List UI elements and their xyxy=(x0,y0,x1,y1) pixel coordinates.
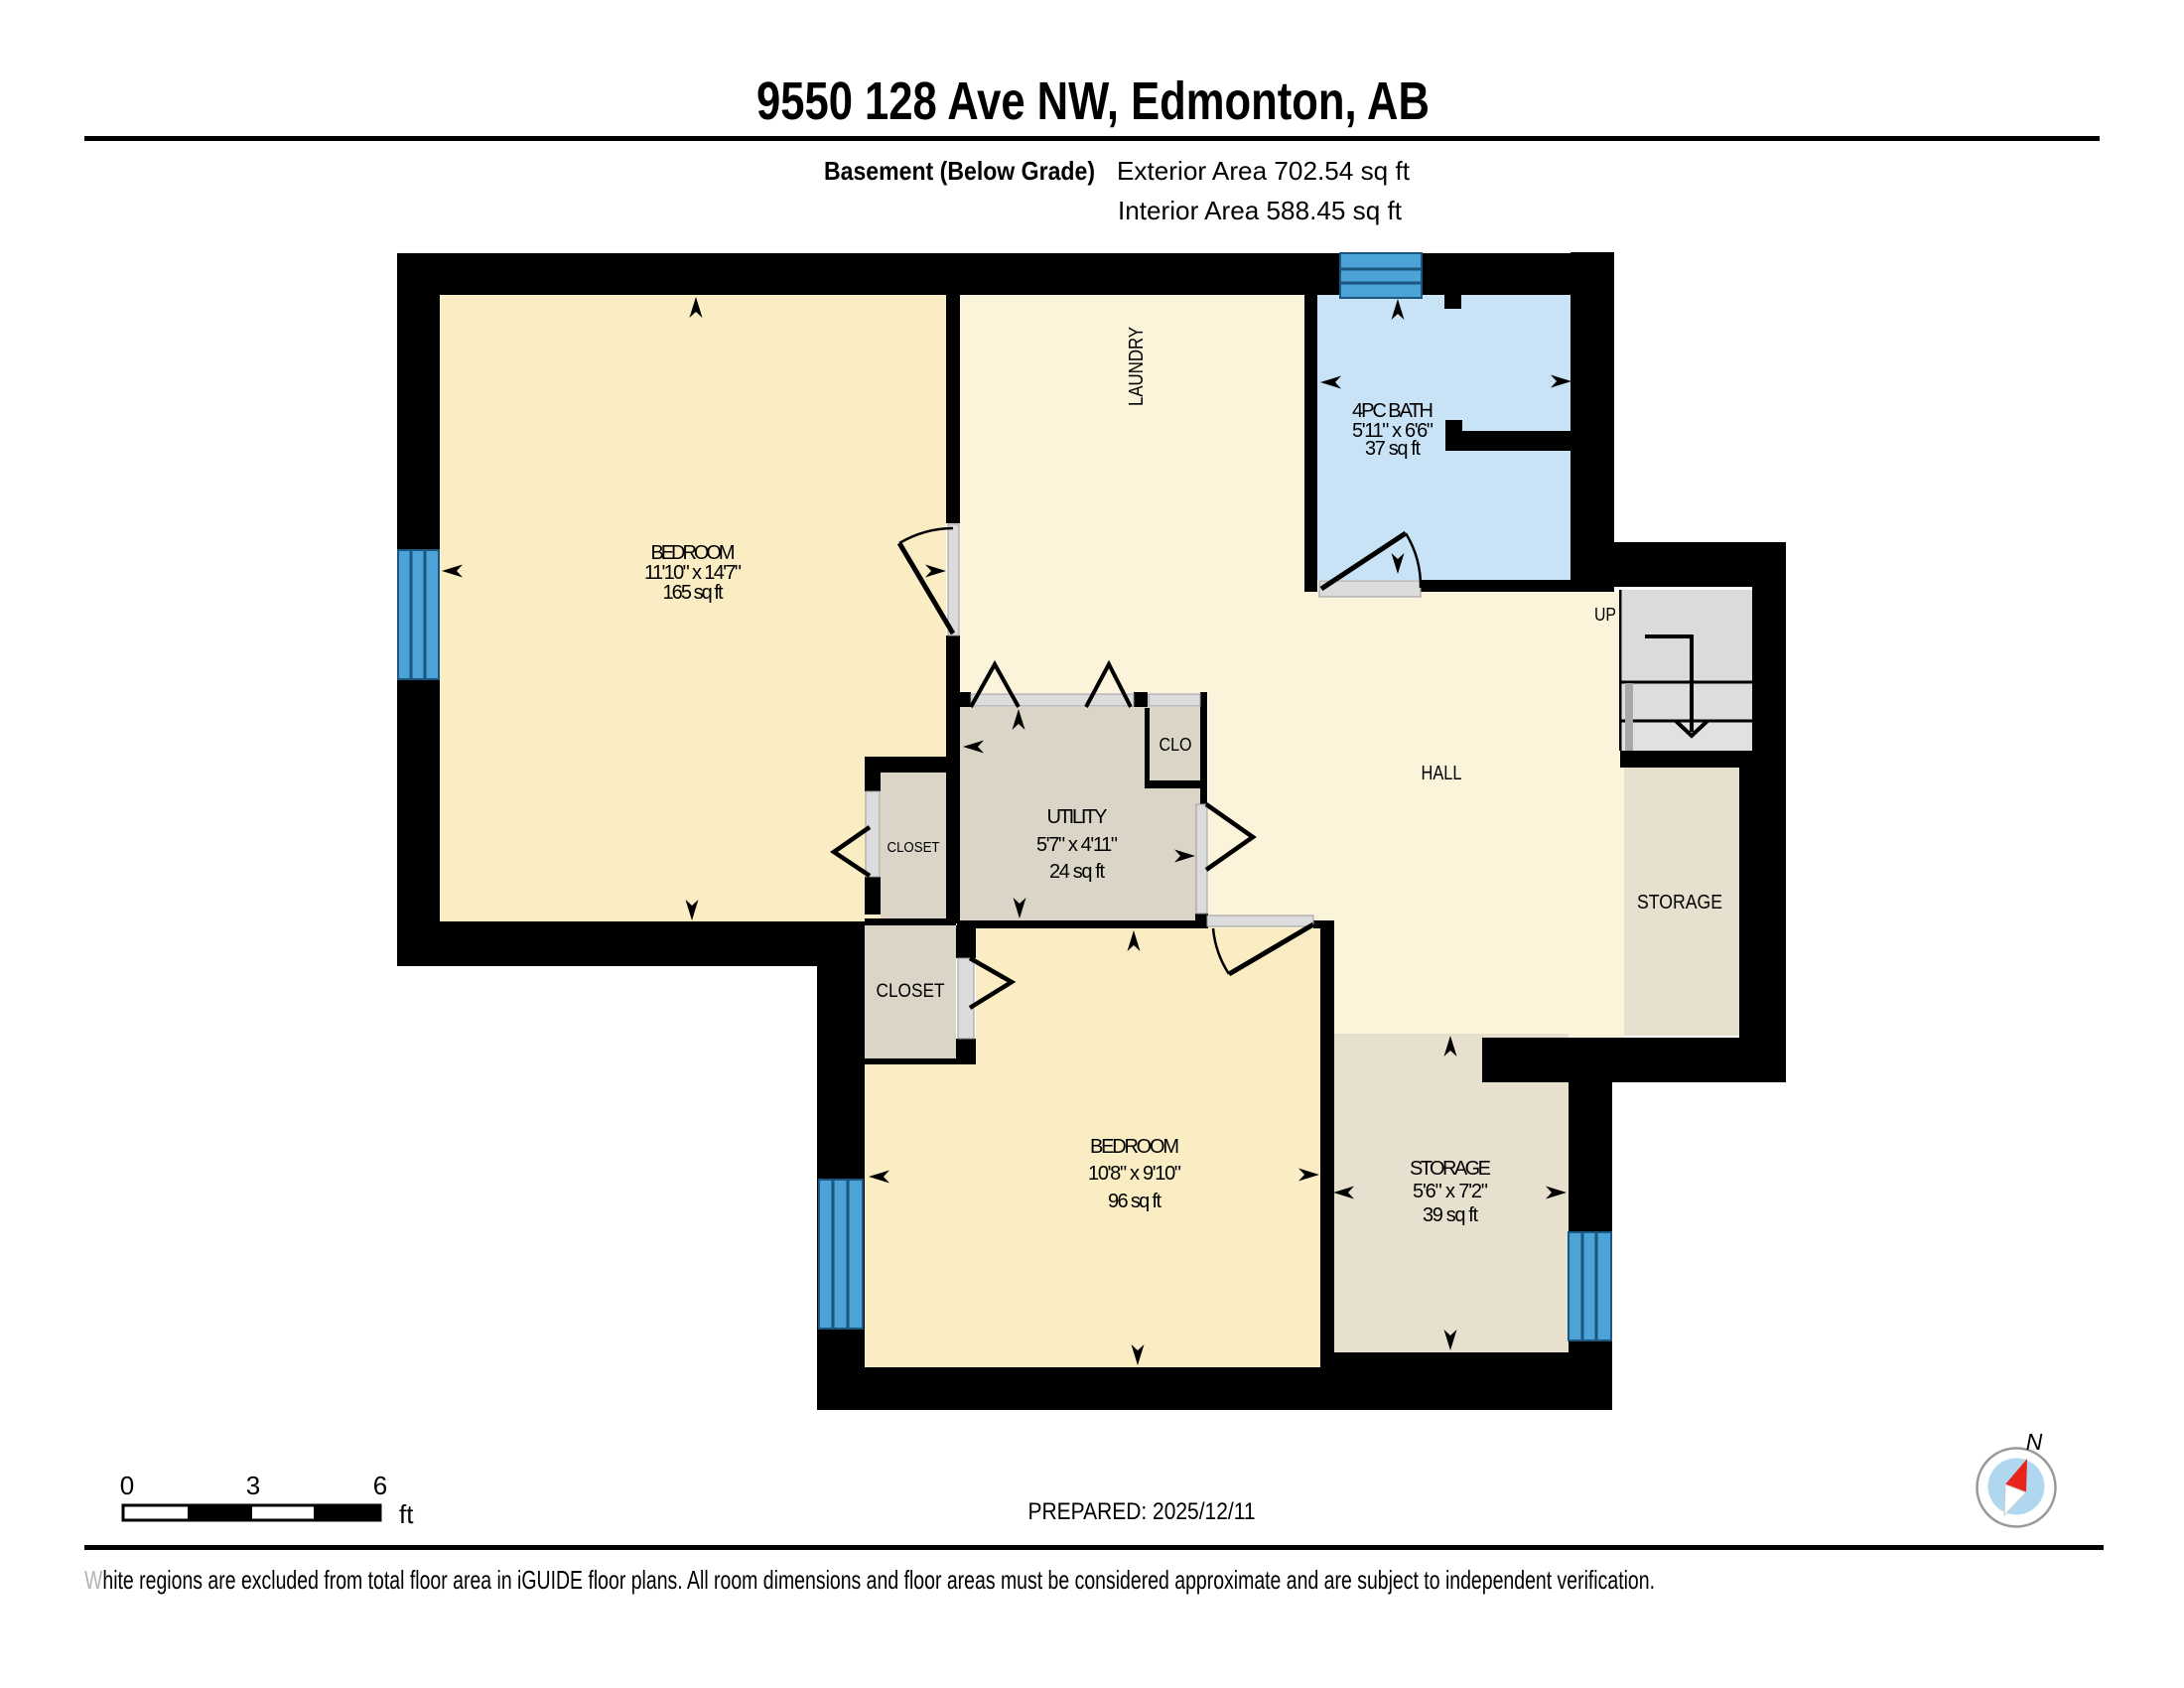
svg-text:165 sq ft: 165 sq ft xyxy=(663,582,724,604)
svg-text:9550 128 Ave NW, Edmonton, AB: 9550 128 Ave NW, Edmonton, AB xyxy=(756,71,1430,131)
svg-text:3: 3 xyxy=(246,1471,260,1500)
svg-text:ft: ft xyxy=(399,1499,414,1529)
svg-text:5'6" x 7'2": 5'6" x 7'2" xyxy=(1413,1181,1488,1202)
svg-text:10'8" x 9'10": 10'8" x 9'10" xyxy=(1088,1163,1181,1185)
svg-text:STORAGE: STORAGE xyxy=(1410,1158,1491,1180)
svg-text:39 sq ft: 39 sq ft xyxy=(1423,1204,1478,1226)
svg-text:Basement (Below Grade): Basement (Below Grade) xyxy=(824,156,1095,186)
svg-text:UTILITY: UTILITY xyxy=(1047,806,1108,828)
svg-text:Interior Area 588.45 sq ft: Interior Area 588.45 sq ft xyxy=(1118,196,1403,225)
svg-text:4PC BATH: 4PC BATH xyxy=(1352,400,1433,422)
svg-text:0: 0 xyxy=(120,1471,134,1500)
svg-text:UP: UP xyxy=(1594,605,1616,625)
svg-text:PREPARED: 2025/12/11: PREPARED: 2025/12/11 xyxy=(1028,1498,1256,1525)
svg-text:CLOSET: CLOSET xyxy=(887,840,940,856)
svg-text:BEDROOM: BEDROOM xyxy=(1090,1136,1179,1158)
svg-text:N: N xyxy=(2026,1429,2043,1455)
svg-text:37 sq ft: 37 sq ft xyxy=(1365,438,1421,460)
svg-text:CLO: CLO xyxy=(1160,735,1192,755)
svg-text:BEDROOM: BEDROOM xyxy=(651,542,736,564)
svg-text:5'7" x 4'11": 5'7" x 4'11" xyxy=(1036,834,1118,856)
svg-text:24 sq ft: 24 sq ft xyxy=(1049,861,1105,883)
svg-text:STORAGE: STORAGE xyxy=(1637,892,1722,914)
svg-text:11'10" x 14'7": 11'10" x 14'7" xyxy=(644,562,742,584)
svg-text:HALL: HALL xyxy=(1422,763,1462,784)
svg-text:6: 6 xyxy=(373,1471,387,1500)
svg-text:CLOSET: CLOSET xyxy=(877,981,945,1002)
svg-text:White regions are excluded fro: White regions are excluded from total fl… xyxy=(84,1565,1655,1595)
svg-text:96 sq ft: 96 sq ft xyxy=(1108,1191,1161,1212)
svg-text:LAUNDRY: LAUNDRY xyxy=(1126,327,1148,406)
svg-text:Exterior Area 702.54 sq ft: Exterior Area 702.54 sq ft xyxy=(1117,156,1411,186)
